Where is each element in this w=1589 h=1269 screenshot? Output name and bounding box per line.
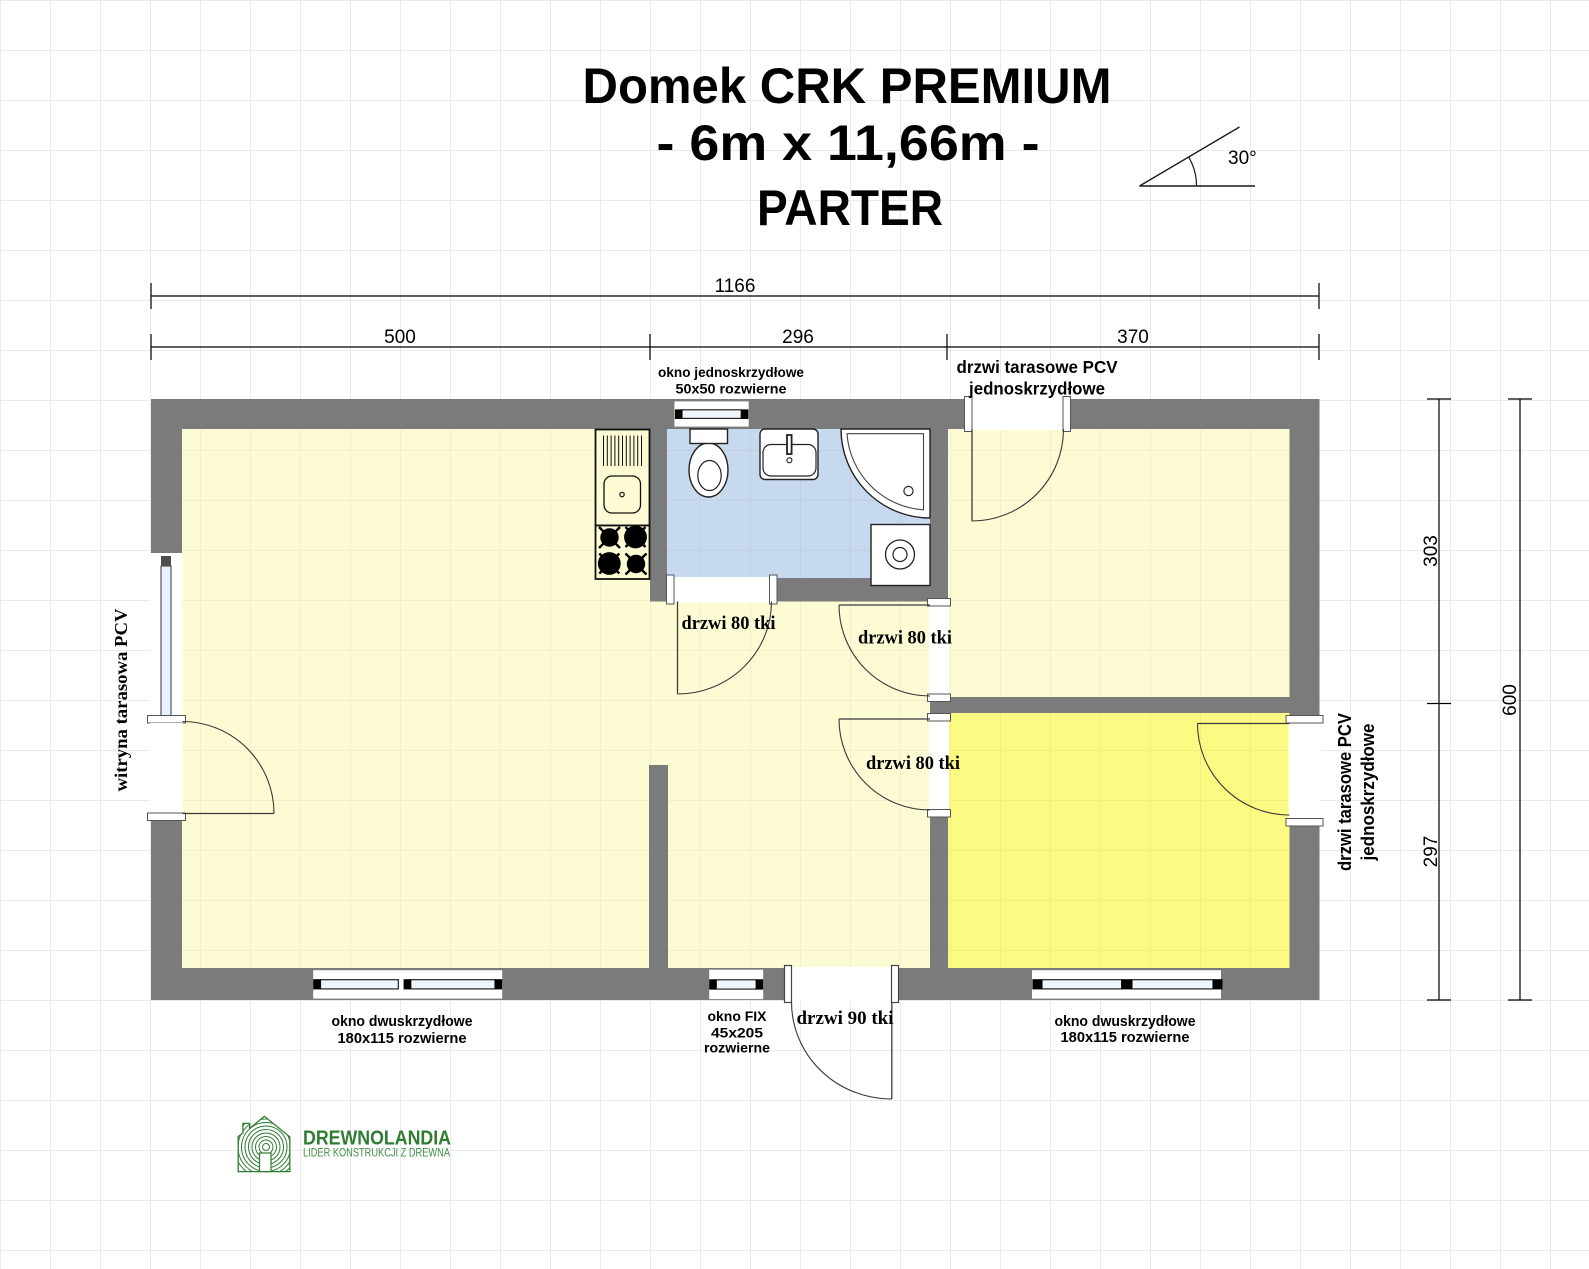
svg-text:180x115 rozwierne: 180x115 rozwierne [338, 1030, 467, 1047]
svg-text:drzwi 90 tki: drzwi 90 tki [797, 1008, 894, 1029]
svg-text:DREWNOLANDIA: DREWNOLANDIA [303, 1127, 451, 1150]
svg-text:jednoskrzydłowe: jednoskrzydłowe [968, 379, 1105, 399]
svg-text:drzwi tarasowe PCV: drzwi tarasowe PCV [957, 357, 1118, 377]
svg-text:okno dwuskrzydłowe: okno dwuskrzydłowe [1055, 1013, 1196, 1030]
svg-text:370: 370 [1117, 327, 1149, 348]
svg-text:drzwi 80 tki: drzwi 80 tki [682, 613, 776, 634]
svg-text:LIDER KONSTRUKCJI Z DREWNA: LIDER KONSTRUKCJI Z DREWNA [303, 1148, 450, 1160]
svg-text:180x115 rozwierne: 180x115 rozwierne [1061, 1029, 1190, 1046]
svg-text:jednoskrzydłowe: jednoskrzydłowe [1358, 724, 1378, 862]
svg-text:30°: 30° [1228, 148, 1257, 169]
svg-text:PARTER: PARTER [757, 180, 943, 236]
svg-text:okno dwuskrzydłowe: okno dwuskrzydłowe [332, 1013, 473, 1030]
svg-text:okno jednoskrzydłowe: okno jednoskrzydłowe [658, 364, 804, 380]
svg-text:okno FIX: okno FIX [708, 1008, 768, 1024]
svg-text:296: 296 [782, 327, 814, 348]
svg-text:Domek CRK PREMIUM: Domek CRK PREMIUM [583, 58, 1112, 114]
svg-text:drzwi tarasowe PCV: drzwi tarasowe PCV [1335, 713, 1355, 871]
svg-text:drzwi 80 tki: drzwi 80 tki [858, 628, 952, 649]
svg-text:rozwierne: rozwierne [704, 1040, 770, 1056]
svg-text:45x205: 45x205 [711, 1025, 763, 1041]
svg-text:500: 500 [384, 327, 416, 348]
svg-text:600: 600 [1500, 684, 1521, 716]
svg-text:drzwi 80 tki: drzwi 80 tki [866, 753, 960, 774]
svg-text:witryna tarasowa PCV: witryna tarasowa PCV [111, 609, 131, 792]
svg-text:1166: 1166 [715, 276, 756, 297]
svg-text:- 6m x 11,66m -: - 6m x 11,66m - [657, 115, 1040, 171]
svg-text:303: 303 [1421, 535, 1442, 567]
svg-text:297: 297 [1421, 836, 1442, 868]
svg-text:50x50 rozwierne: 50x50 rozwierne [676, 381, 787, 397]
